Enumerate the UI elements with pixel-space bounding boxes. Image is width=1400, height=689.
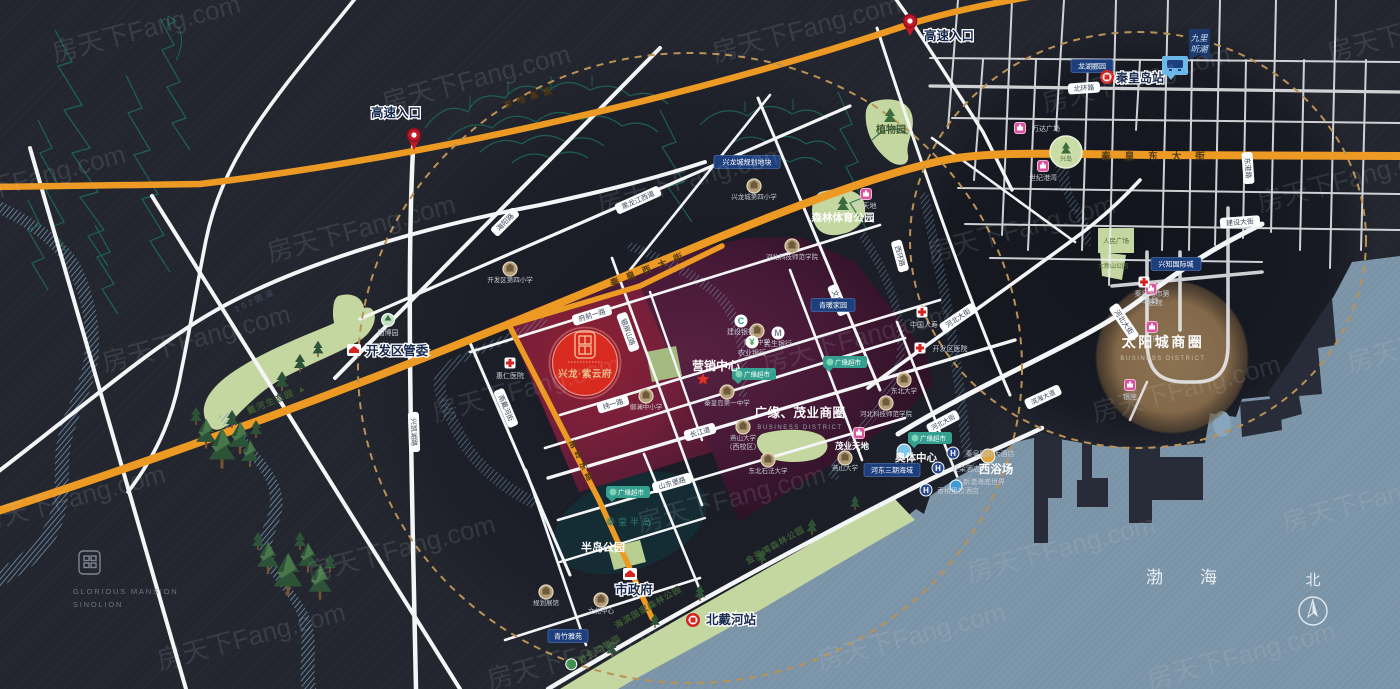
svg-text:BUSINESS DISTRICT: BUSINESS DISTRICT (757, 425, 842, 431)
svg-text:广缘、茂业商圈: 广缘、茂业商圈 (754, 405, 845, 420)
svg-text:太阳城商圈: 太阳城商圈 (1122, 334, 1205, 350)
svg-text:北戴河站: 北戴河站 (706, 612, 757, 627)
svg-text:BUSINESS DISTRICT: BUSINESS DISTRICT (1120, 356, 1205, 362)
svg-text:开发区管委: 开发区管委 (366, 343, 429, 358)
svg-text:C: C (738, 316, 745, 326)
svg-text:GLORIOUS MANSION: GLORIOUS MANSION (73, 587, 178, 596)
svg-text:兴知国际城: 兴知国际城 (1159, 260, 1194, 269)
svg-text:渤海: 渤海 (1146, 568, 1254, 587)
svg-text:万达广场: 万达广场 (1032, 124, 1060, 133)
svg-text:人民广场: 人民广场 (1103, 236, 1130, 245)
svg-text:SINOLION: SINOLION (73, 600, 123, 609)
svg-text:青竹雅苑: 青竹雅苑 (554, 632, 582, 641)
svg-text:燕山大学: 燕山大学 (832, 463, 859, 472)
svg-text:建设银行: 建设银行 (727, 327, 755, 336)
svg-text:河东三期海域: 河东三期海域 (871, 466, 913, 475)
svg-text:H: H (935, 464, 941, 473)
svg-text:一医院: 一医院 (1142, 298, 1163, 307)
svg-text:规划展馆: 规划展馆 (533, 598, 560, 607)
svg-text:半岛公园: 半岛公园 (581, 540, 625, 554)
svg-text:秦皇岛市第: 秦皇岛市第 (1135, 289, 1170, 298)
svg-text:营销中心: 营销中心 (692, 358, 740, 373)
svg-text:北: 北 (1305, 572, 1320, 589)
svg-text:（西校区）: （西校区） (726, 442, 761, 451)
svg-text:燕山大学: 燕山大学 (730, 433, 757, 442)
svg-text:H: H (950, 449, 956, 458)
svg-text:茂业天地: 茂业天地 (834, 441, 870, 451)
svg-text:世纪港湾: 世纪港湾 (1029, 173, 1057, 182)
svg-text:园博园: 园博园 (378, 328, 399, 337)
svg-text:龙湖郦园: 龙湖郦园 (1078, 62, 1106, 71)
svg-text:御澜中小学: 御澜中小学 (630, 402, 663, 411)
svg-text:奥体中心: 奥体中心 (895, 451, 937, 464)
svg-text:新澳海底世界: 新澳海底世界 (963, 477, 1005, 486)
svg-text:广缘超市: 广缘超市 (618, 488, 645, 497)
svg-text:九里: 九里 (1190, 33, 1209, 43)
svg-text:新天地: 新天地 (856, 201, 877, 210)
svg-text:秦皇岛第一中学: 秦皇岛第一中学 (704, 398, 750, 407)
svg-text:¥: ¥ (749, 337, 754, 347)
svg-text:森林体育公园: 森林体育公园 (811, 211, 875, 224)
svg-text:秦皇国际大酒店: 秦皇国际大酒店 (966, 449, 1015, 458)
svg-text:河北科技师范学院: 河北科技师范学院 (766, 252, 819, 261)
svg-text:开发区医院: 开发区医院 (933, 344, 968, 353)
svg-text:高速入口: 高速入口 (924, 28, 974, 43)
svg-text:秦皇东大街: 秦皇东大街 (1100, 151, 1219, 163)
svg-text:文化中心: 文化中心 (588, 606, 615, 615)
svg-text:植物园: 植物园 (875, 123, 906, 136)
svg-text:西浴场: 西浴场 (979, 462, 1014, 476)
svg-text:青暖家园: 青暖家园 (819, 301, 847, 310)
svg-text:大新山公园: 大新山公园 (1098, 262, 1128, 270)
svg-text:兴龙城第四小学: 兴龙城第四小学 (731, 192, 777, 201)
svg-text:开发区第四小学: 开发区第四小学 (487, 275, 533, 284)
svg-text:香格里拉酒店: 香格里拉酒店 (937, 486, 979, 495)
svg-text:M: M (774, 328, 782, 338)
svg-text:东北大学: 东北大学 (891, 386, 918, 395)
svg-text:兴岛: 兴岛 (1060, 155, 1072, 163)
svg-text:市政府: 市政府 (615, 582, 653, 597)
svg-text:亚朵酒店: 亚朵酒店 (952, 464, 980, 473)
svg-text:广缘超市: 广缘超市 (835, 358, 862, 367)
svg-text:河北科技师范学院: 河北科技师范学院 (860, 409, 913, 418)
svg-text:H: H (923, 486, 929, 495)
svg-text:广缘超市: 广缘超市 (920, 434, 947, 443)
